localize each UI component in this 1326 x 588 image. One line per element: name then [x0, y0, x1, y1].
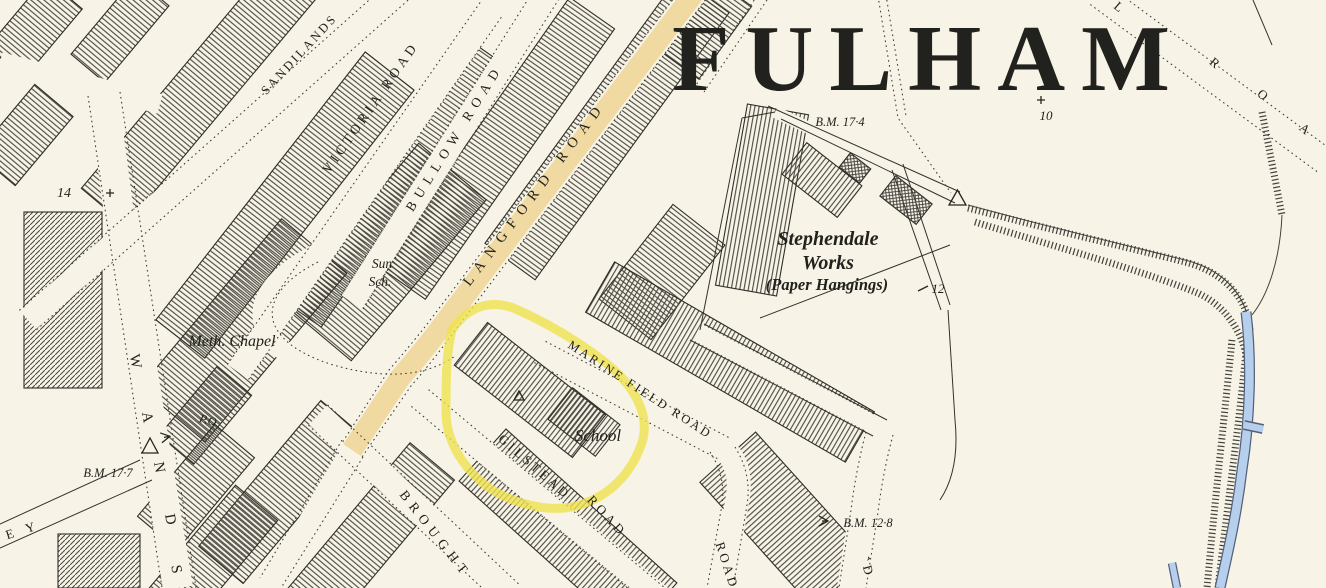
place-label-meth-chapel: Meth. Chapel	[187, 333, 276, 350]
terrace-block	[58, 534, 140, 588]
place-label-sun-sch-1: Sun	[372, 256, 393, 271]
stream-spur	[1244, 425, 1263, 429]
place-label-stephendale-3: (Paper Hangings)	[766, 275, 888, 294]
place-label-stephendale-2: Works	[802, 252, 854, 274]
place-label-stephendale-1: Stephendale	[777, 228, 878, 250]
spot-number: 10	[1040, 108, 1054, 123]
map-title: FULHAM	[672, 7, 1186, 111]
spot-number: 14	[57, 186, 71, 201]
spot-number: 12	[932, 281, 946, 296]
benchmark-label: B.M. 12·8	[843, 516, 893, 530]
place-label-school: School	[575, 426, 622, 445]
map-viewport[interactable]: FULHAM SANDILANDS VICTORIA ROAD BULLOW R…	[0, 0, 1326, 588]
place-label-sun-sch-2: Sch.	[369, 274, 392, 289]
benchmark-label: B.M. 17·7	[83, 466, 133, 480]
benchmark-label: B.M. 17·4	[815, 115, 864, 129]
